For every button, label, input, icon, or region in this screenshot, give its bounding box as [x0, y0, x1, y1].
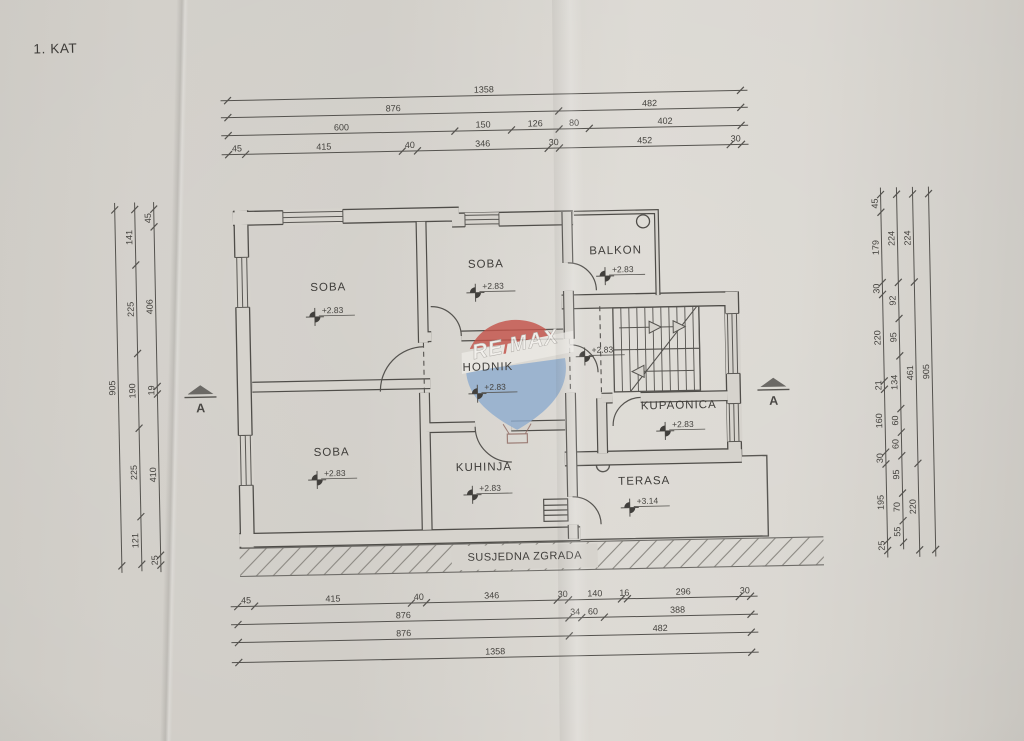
elevation-value-soba-2: +2.83: [482, 281, 504, 291]
dimension-chain-left: 905141225190225121454061941025: [104, 202, 165, 573]
elevation-marker-soba-3: +2.83: [308, 468, 357, 489]
elevation-marker-balkon: +2.83: [596, 264, 645, 285]
dimension-label: 905: [107, 380, 117, 395]
dimension-label: 55: [892, 527, 902, 537]
dimension-label: 224: [902, 230, 912, 245]
dimension-label: 346: [484, 590, 499, 600]
dimension-label: 225: [126, 302, 136, 317]
floor-title: 1. KAT: [33, 41, 77, 57]
dimension-label: 16: [619, 588, 629, 598]
dimension-label: 141: [124, 230, 134, 245]
window-soba1-top: [283, 208, 343, 225]
dimension-label: 21: [873, 380, 883, 390]
dimension-chain-bottom: 4541540346301401629630876346038887648213…: [230, 585, 758, 666]
dimension-label: 1358: [485, 646, 505, 656]
elevation-marker-terasa: +3.14: [621, 495, 670, 516]
dimension-label: 30: [871, 284, 881, 294]
elevation-value-terasa: +3.14: [637, 496, 659, 506]
elevation-marker-kupaonica: +2.83: [656, 419, 705, 440]
dimension-label: 905: [921, 364, 931, 379]
dimension-label: 45: [870, 198, 880, 208]
dimension-label: 346: [475, 138, 490, 148]
terrace-outline: [572, 455, 769, 539]
dimension-label: 80: [569, 118, 579, 128]
door-terasa: [573, 496, 602, 525]
elevation-value-soba-1: +2.83: [322, 305, 344, 315]
elevation-value-kuhinja: +2.83: [479, 483, 501, 493]
dimension-label: 40: [405, 140, 415, 150]
dimension-label: 60: [890, 415, 900, 425]
dimension-label: 876: [396, 610, 411, 620]
scanned-floorplan-photo: 1. KAT: [0, 0, 1024, 741]
dimension-label: 30: [731, 133, 741, 143]
room-label-hodnik: HODNIK: [462, 361, 513, 374]
dimension-label: 190: [127, 383, 137, 398]
window-stair-right: [725, 313, 741, 373]
dimension-label: 452: [637, 135, 652, 145]
room-label-kupaonica: KUPAONICA: [641, 399, 717, 413]
dimension-label: 876: [396, 628, 411, 638]
window-soba2-top: [465, 212, 499, 228]
dimension-chain-top: 1358876482600150126804024541540346304523…: [220, 79, 748, 158]
dimension-label: 70: [892, 502, 902, 512]
dimension-label: 25: [150, 555, 160, 565]
door-balkon: [568, 262, 597, 291]
section-letter: A: [769, 394, 778, 408]
room-label-terasa: TERASA: [618, 475, 670, 488]
dimension-label: 45: [143, 213, 153, 223]
dimension-label: 600: [334, 122, 349, 132]
floorplan-drawing: RE/MAX 135887648260015012680402454154034…: [0, 0, 1024, 741]
window-kupaonica-right: [727, 403, 743, 441]
room-label-soba-1: SOBA: [310, 281, 346, 294]
elevation-value-hall: +2.83: [592, 344, 614, 354]
elevation-value-soba-3: +2.83: [324, 468, 346, 478]
dimension-label: 160: [874, 413, 884, 428]
elevation-value-balkon: +2.83: [612, 264, 634, 274]
dimension-label: 34: [570, 607, 580, 617]
dimension-label: 95: [891, 469, 901, 479]
stair-arrow-up-2: [673, 321, 685, 333]
dimension-label: 1358: [474, 84, 494, 94]
dimension-label: 410: [148, 467, 158, 482]
section-letter: A: [196, 401, 205, 415]
dimension-label: 195: [876, 495, 886, 510]
staircase: [613, 306, 701, 392]
door-kuhinja: [475, 426, 512, 463]
dimension-label: 30: [549, 137, 559, 147]
dimension-label: 30: [875, 453, 885, 463]
dimension-label: 415: [316, 142, 331, 152]
section-marker-right: A: [757, 377, 790, 408]
dimension-label: 402: [657, 116, 672, 126]
dimension-label: 60: [890, 439, 900, 449]
dimension-label: 220: [872, 330, 882, 345]
balloon-basket: [507, 434, 527, 443]
elevation-value-kupaonica: +2.83: [672, 419, 694, 429]
elevation-marker-soba-1: +2.83: [306, 305, 355, 326]
elevation-value-hodnik: +2.83: [484, 382, 506, 392]
dimension-label: 179: [870, 240, 880, 255]
dimension-label: 19: [146, 385, 156, 395]
dimension-label: 45: [241, 595, 251, 605]
room-label-balkon: BALKON: [589, 244, 642, 257]
door-leaf-terasa: [544, 499, 568, 521]
elevation-marker-kuhinja: +2.83: [463, 483, 512, 504]
dimension-label: 60: [588, 606, 598, 616]
dimension-label: 225: [129, 465, 139, 480]
dimension-label: 134: [889, 375, 899, 390]
door-kupaonica: [613, 397, 642, 426]
window-soba1-left: [234, 257, 251, 307]
room-label-soba-2: SOBA: [468, 258, 504, 271]
room-label-soba-3: SOBA: [314, 446, 350, 459]
dimension-chain-right: 4517930220211603019525224929513460609570…: [869, 187, 939, 558]
balcony-column-symbol: [636, 215, 649, 228]
stair-arrow-up-1: [649, 321, 661, 333]
dimension-label: 92: [888, 295, 898, 305]
dimension-label: 140: [587, 588, 602, 598]
dimension-label: 415: [325, 593, 340, 603]
dimension-label: 388: [670, 605, 685, 615]
dimension-label: 95: [888, 332, 898, 342]
dimension-label: 150: [475, 119, 490, 129]
dimension-label: 224: [886, 231, 896, 246]
dimension-label: 876: [386, 103, 401, 113]
dimension-label: 30: [558, 589, 568, 599]
dimension-label: 45: [232, 143, 242, 153]
dimension-label: 121: [130, 533, 140, 548]
dimension-label: 406: [145, 299, 155, 314]
dimension-label: 461: [905, 365, 915, 380]
room-label-kuhinja: KUHINJA: [456, 461, 512, 474]
door-soba2: [431, 306, 462, 337]
dimension-label: 482: [653, 623, 668, 633]
dimension-label: 30: [740, 585, 750, 595]
dimension-label: 482: [642, 98, 657, 108]
dimension-label: 220: [908, 499, 918, 514]
elevation-marker-soba-2: +2.83: [466, 280, 515, 301]
drawing-sheet: 1. KAT: [0, 0, 1024, 741]
neighbor-building-label: SUSJEDNA ZGRADA: [467, 550, 582, 564]
section-marker-left: A: [184, 385, 217, 416]
dimension-label: 126: [528, 118, 543, 128]
window-soba3-left: [237, 435, 254, 485]
dimension-label: 296: [676, 586, 691, 596]
dimension-label: 40: [414, 592, 424, 602]
dimension-label: 25: [877, 541, 887, 551]
